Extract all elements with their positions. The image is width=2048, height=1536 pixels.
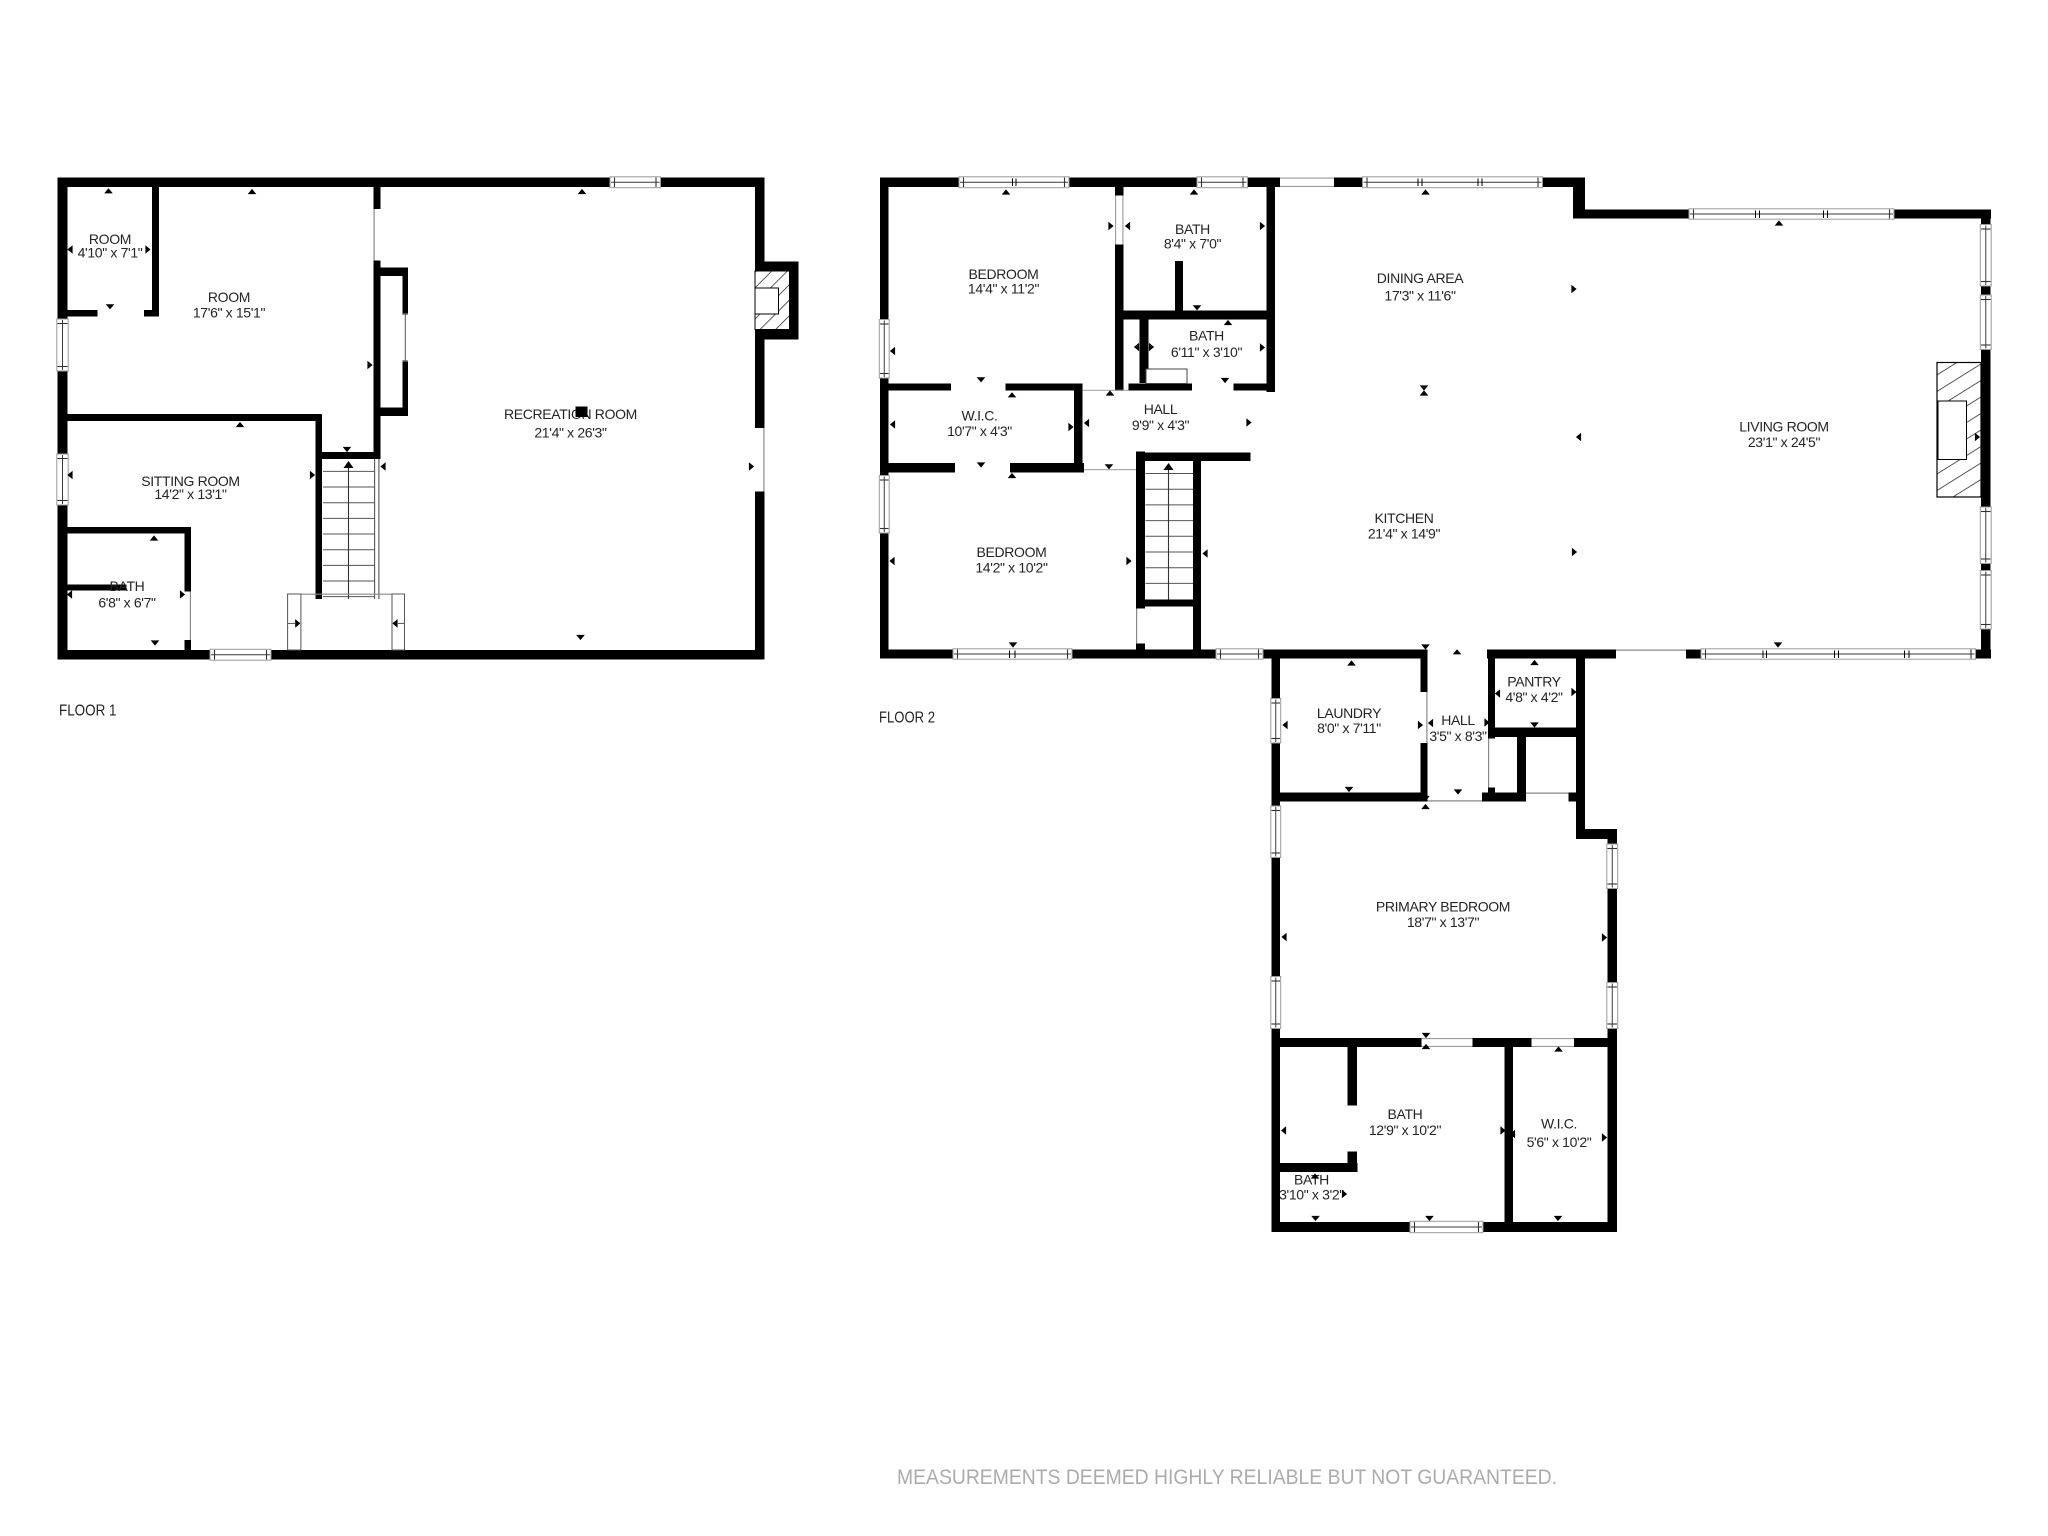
svg-text:23'1" x 24'5": 23'1" x 24'5" (1748, 434, 1821, 450)
svg-text:BATH: BATH (1189, 328, 1224, 344)
svg-text:HALL: HALL (1441, 712, 1475, 728)
svg-text:LAUNDRY: LAUNDRY (1317, 705, 1382, 721)
svg-text:4'10" x 7'1": 4'10" x 7'1" (78, 245, 143, 261)
svg-text:BATH: BATH (1388, 1106, 1423, 1122)
svg-text:3'10" x 3'2": 3'10" x 3'2" (1279, 1187, 1344, 1203)
svg-text:8'0" x 7'11": 8'0" x 7'11" (1317, 720, 1381, 736)
svg-text:LIVING ROOM: LIVING ROOM (1739, 418, 1829, 434)
svg-text:KITCHEN: KITCHEN (1375, 510, 1434, 526)
svg-text:21'4" x 14'9": 21'4" x 14'9" (1368, 526, 1441, 542)
svg-text:9'9" x 4'3": 9'9" x 4'3" (1132, 417, 1190, 433)
svg-text:BEDROOM: BEDROOM (977, 544, 1047, 560)
svg-text:DINING AREA: DINING AREA (1377, 270, 1464, 286)
svg-text:PRIMARY BEDROOM: PRIMARY BEDROOM (1376, 899, 1510, 915)
svg-text:5'6" x 10'2": 5'6" x 10'2" (1527, 1134, 1592, 1150)
svg-text:8'4" x 7'0": 8'4" x 7'0" (1164, 236, 1222, 252)
svg-text:3'5" x 8'3": 3'5" x 8'3" (1429, 728, 1487, 744)
svg-text:MEASUREMENTS DEEMED HIGHLY REL: MEASUREMENTS DEEMED HIGHLY RELIABLE BUT … (897, 1465, 1557, 1489)
svg-text:14'2" x 13'1": 14'2" x 13'1" (154, 486, 227, 502)
svg-text:RECREATION ROOM: RECREATION ROOM (504, 406, 637, 422)
svg-text:BATH: BATH (1294, 1172, 1329, 1188)
svg-text:12'9" x 10'2": 12'9" x 10'2" (1369, 1122, 1442, 1138)
svg-text:10'7" x 4'3": 10'7" x 4'3" (947, 423, 1012, 439)
svg-text:21'4" x 26'3": 21'4" x 26'3" (534, 425, 607, 441)
svg-text:17'3" x 11'6": 17'3" x 11'6" (1384, 288, 1456, 304)
svg-text:14'4" x 11'2": 14'4" x 11'2" (968, 281, 1040, 297)
svg-text:HALL: HALL (1144, 401, 1178, 417)
svg-text:PANTRY: PANTRY (1507, 674, 1561, 690)
svg-text:6'8" x 6'7": 6'8" x 6'7" (98, 595, 156, 611)
svg-text:4'8" x 4'2": 4'8" x 4'2" (1505, 689, 1563, 705)
svg-text:BATH: BATH (110, 578, 145, 594)
svg-text:18'7" x 13'7": 18'7" x 13'7" (1407, 914, 1480, 930)
svg-text:ROOM: ROOM (208, 289, 250, 305)
svg-text:FLOOR 2: FLOOR 2 (879, 710, 935, 727)
svg-text:14'2" x 10'2": 14'2" x 10'2" (975, 560, 1048, 576)
svg-text:FLOOR 1: FLOOR 1 (59, 703, 117, 720)
svg-text:6'11" x 3'10": 6'11" x 3'10" (1171, 344, 1243, 360)
svg-text:W.I.C.: W.I.C. (1541, 1115, 1577, 1131)
svg-text:17'6" x 15'1": 17'6" x 15'1" (193, 305, 266, 321)
svg-text:W.I.C.: W.I.C. (961, 407, 997, 423)
